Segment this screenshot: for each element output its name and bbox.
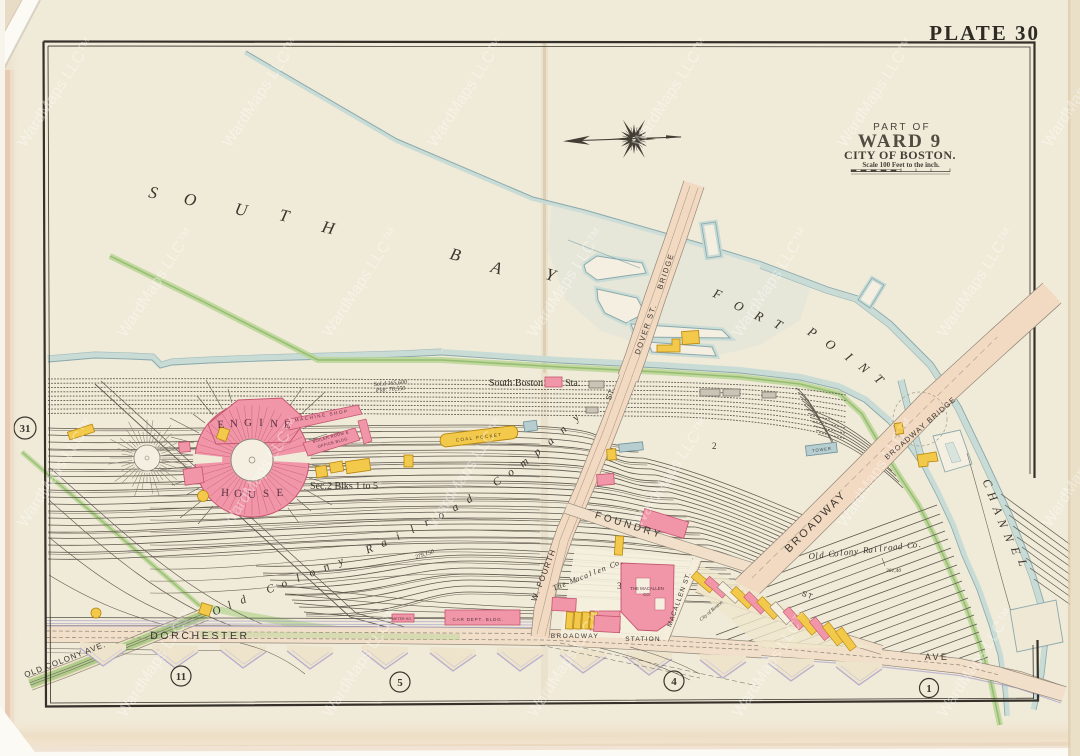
svg-text:South Boston: South Boston bbox=[489, 378, 543, 389]
svg-text:N: N bbox=[270, 418, 278, 430]
svg-text:31: 31 bbox=[20, 423, 31, 435]
svg-text:AVE: AVE bbox=[925, 652, 950, 662]
svg-text:E: E bbox=[217, 419, 225, 431]
svg-text:11: 11 bbox=[176, 671, 186, 683]
svg-text:G: G bbox=[244, 417, 252, 429]
svg-text:H: H bbox=[221, 487, 229, 499]
svg-text:CAR DEPT. BLDG.: CAR DEPT. BLDG. bbox=[452, 617, 503, 622]
svg-text:STATION: STATION bbox=[625, 636, 661, 643]
svg-text:I: I bbox=[259, 417, 263, 429]
svg-text:2: 2 bbox=[712, 441, 717, 451]
svg-text:Sec.2 Blks 1 to 5: Sec.2 Blks 1 to 5 bbox=[310, 481, 378, 492]
svg-text:E: E bbox=[276, 487, 283, 499]
svg-text:Scale 100 Feet to the inch.: Scale 100 Feet to the inch. bbox=[862, 161, 940, 169]
svg-text:CITY OF BOSTON.: CITY OF BOSTON. bbox=[844, 148, 956, 162]
svg-text:PLATE 30: PLATE 30 bbox=[929, 21, 1040, 45]
svg-text:361,40: 361,40 bbox=[885, 567, 901, 574]
svg-text:5: 5 bbox=[397, 677, 403, 689]
svg-text:THE MACALLEN: THE MACALLEN bbox=[630, 586, 664, 591]
svg-text:N: N bbox=[230, 418, 238, 430]
svg-text:4: 4 bbox=[671, 676, 677, 688]
svg-text:S: S bbox=[263, 488, 269, 500]
svg-text:CO.: CO. bbox=[643, 592, 651, 597]
svg-text:1: 1 bbox=[926, 683, 932, 695]
svg-text:Sta.: Sta. bbox=[565, 378, 580, 389]
svg-text:y: y bbox=[853, 546, 859, 556]
svg-text:3: 3 bbox=[617, 581, 622, 591]
